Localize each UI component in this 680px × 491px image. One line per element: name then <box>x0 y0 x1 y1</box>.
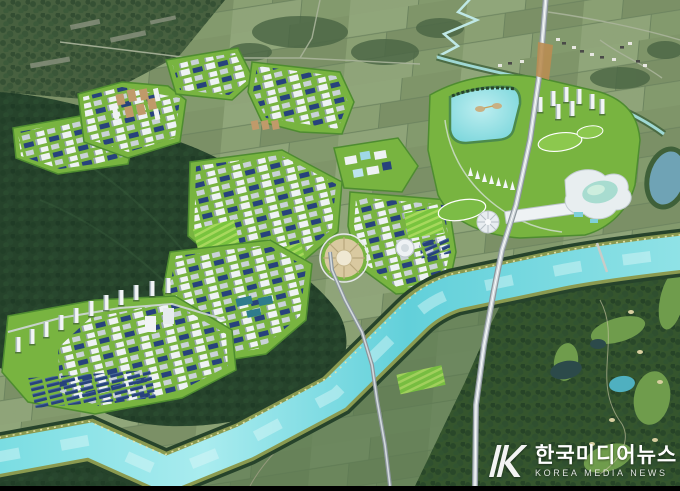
watermark-english-subtitle: KOREA MEDIA NEWS <box>535 469 677 478</box>
industrial-district-northeast <box>248 62 354 134</box>
lake-island <box>475 106 485 112</box>
watermark-text: 한국미디어뉴스 KOREA MEDIA NEWS <box>535 445 677 478</box>
watermark: 한국미디어뉴스 KOREA MEDIA NEWS <box>489 441 677 481</box>
lake <box>450 87 520 143</box>
korea-media-news-logo-icon <box>489 441 527 481</box>
sports-dome <box>477 211 499 233</box>
aerial-rendering-image: 한국미디어뉴스 KOREA MEDIA NEWS <box>0 0 680 486</box>
watermark-korean-title: 한국미디어뉴스 <box>535 445 677 466</box>
lake-island <box>492 103 502 109</box>
rendering-canvas <box>0 0 680 486</box>
